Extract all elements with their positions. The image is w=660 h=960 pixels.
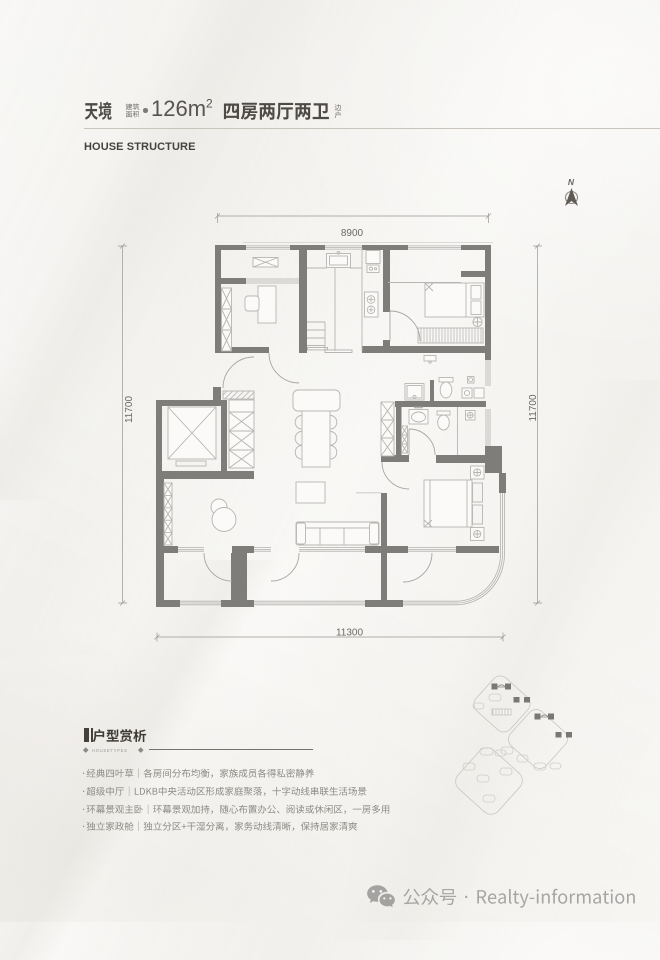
svg-text:11700: 11700 bbox=[528, 394, 539, 422]
svg-text:11700: 11700 bbox=[124, 396, 135, 424]
svg-text:8900: 8900 bbox=[341, 228, 364, 239]
svg-text:11300: 11300 bbox=[336, 628, 364, 639]
svg-text:N: N bbox=[568, 177, 575, 187]
